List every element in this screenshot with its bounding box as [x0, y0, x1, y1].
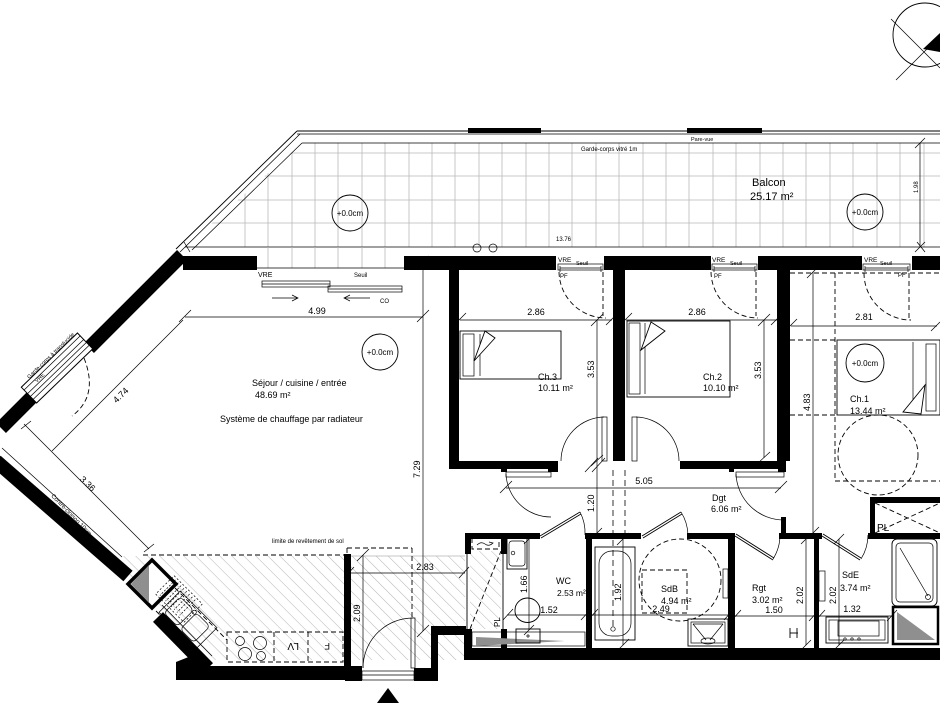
svg-text:3.02 m²: 3.02 m²: [752, 595, 783, 605]
svg-text:2.83: 2.83: [416, 562, 434, 572]
svg-text:48.69 m²: 48.69 m²: [255, 390, 291, 400]
svg-text:3.74 m²: 3.74 m²: [840, 583, 871, 593]
svg-text:1.66: 1.66: [519, 575, 529, 593]
svg-text:2.49: 2.49: [652, 604, 670, 614]
svg-text:2.02: 2.02: [795, 586, 805, 604]
svg-text:2.81: 2.81: [855, 312, 873, 322]
svg-text:SdE: SdE: [842, 570, 859, 580]
svg-text:F: F: [324, 641, 330, 651]
svg-text:1.50: 1.50: [765, 605, 783, 615]
svg-text:2.09: 2.09: [352, 604, 362, 622]
svg-text:Système de chauffage par radia: Système de chauffage par radiateur: [220, 414, 363, 424]
svg-text:Seuil: Seuil: [354, 273, 367, 279]
svg-text:4.99: 4.99: [308, 306, 326, 316]
svg-text:WC: WC: [556, 576, 571, 586]
svg-text:Ch.2: Ch.2: [703, 372, 722, 382]
svg-text:+0.0cm: +0.0cm: [852, 208, 879, 217]
svg-text:SdB: SdB: [661, 584, 678, 594]
svg-text:Ch.1: Ch.1: [850, 394, 869, 404]
svg-text:25.17 m²: 25.17 m²: [750, 191, 794, 203]
svg-text:13.44 m²: 13.44 m²: [850, 406, 886, 416]
svg-text:VRE: VRE: [864, 257, 878, 264]
svg-text:7.29: 7.29: [412, 460, 422, 478]
svg-text:+0.0cm: +0.0cm: [337, 209, 364, 218]
svg-text:1.52: 1.52: [540, 605, 558, 615]
svg-text:2.53 m²: 2.53 m²: [557, 588, 586, 598]
svg-text:3.53: 3.53: [586, 360, 596, 378]
svg-text:2.02: 2.02: [828, 586, 838, 604]
svg-text:Dgt: Dgt: [712, 493, 727, 503]
svg-text:Pare-vue: Pare-vue: [691, 137, 713, 143]
svg-text:2.86: 2.86: [527, 307, 545, 317]
svg-text:10.11 m²: 10.11 m²: [538, 383, 573, 393]
svg-text:PL: PL: [877, 523, 890, 534]
svg-text:6.06 m²: 6.06 m²: [711, 504, 742, 514]
svg-text:3.53: 3.53: [753, 361, 763, 379]
svg-text:Ch.3: Ch.3: [538, 372, 557, 382]
svg-text:VRE: VRE: [558, 257, 572, 264]
svg-text:limite de revêtement de sol: limite de revêtement de sol: [272, 539, 344, 545]
svg-text:Séjour / cuisine / entrée: Séjour / cuisine / entrée: [252, 378, 347, 388]
svg-text:+0.0cm: +0.0cm: [852, 359, 879, 368]
svg-text:Garde-corps vitré 1m: Garde-corps vitré 1m: [581, 147, 637, 153]
svg-text:PF: PF: [898, 273, 906, 279]
svg-text:VRE: VRE: [258, 272, 273, 279]
svg-text:4.83: 4.83: [802, 393, 812, 411]
svg-text:2.86: 2.86: [688, 307, 706, 317]
svg-text:5.05: 5.05: [635, 476, 653, 486]
svg-text:PF: PF: [560, 274, 568, 280]
svg-text:PL: PL: [493, 617, 502, 627]
svg-text:1.92: 1.92: [613, 583, 623, 601]
svg-text:CO: CO: [380, 299, 389, 305]
svg-text:Rgt: Rgt: [752, 583, 767, 593]
svg-text:PF: PF: [714, 274, 722, 280]
svg-text:1.20: 1.20: [586, 494, 596, 512]
svg-text:VRE: VRE: [712, 257, 726, 264]
svg-text:10.10 m²: 10.10 m²: [703, 383, 739, 393]
svg-text:1.32: 1.32: [843, 604, 861, 614]
svg-text:LV: LV: [287, 640, 299, 651]
svg-text:1.98: 1.98: [914, 181, 920, 193]
svg-text:13.76: 13.76: [556, 237, 572, 243]
svg-text:+0.0cm: +0.0cm: [367, 348, 394, 357]
svg-text:Balcon: Balcon: [752, 177, 786, 189]
